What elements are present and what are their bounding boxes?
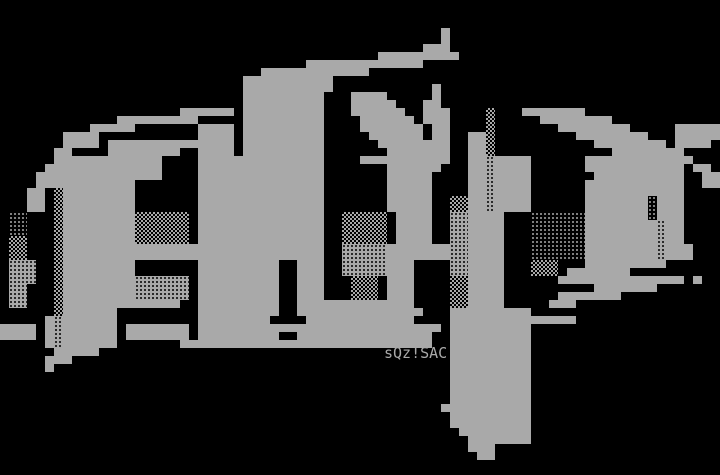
artist-signature: sQz!SAC [384, 345, 447, 361]
ansi-art-canvas: sQz!SAC [0, 0, 720, 475]
